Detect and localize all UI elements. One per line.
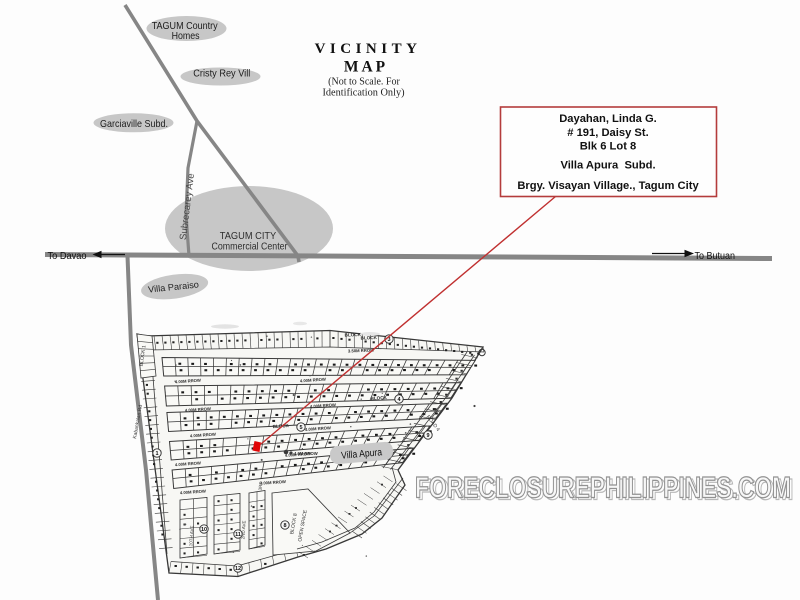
svg-text:8: 8 (283, 523, 286, 529)
svg-text:Homes: Homes (172, 30, 200, 42)
svg-text:Brgy. Visayan Village., Tagum: Brgy. Visayan Village., Tagum City (517, 180, 699, 192)
svg-text:(Not to Scale. For: (Not to Scale. For (328, 77, 400, 88)
svg-text:3RD: 3RD (258, 480, 264, 490)
svg-text:Blk 6 Lot 8: Blk 6 Lot 8 (580, 141, 637, 153)
svg-text:Identification Only): Identification Only) (322, 88, 404, 99)
svg-text:BLOCK: BLOCK (361, 335, 378, 341)
svg-text:5: 5 (299, 425, 302, 431)
svg-text:Commercial Center: Commercial Center (212, 241, 288, 253)
svg-text:Cristy Rey Vill: Cristy Rey Vill (193, 69, 250, 80)
svg-text:BLOCK: BLOCK (345, 332, 362, 338)
svg-text:VICINITY: VICINITY (315, 41, 422, 57)
svg-text:10: 10 (201, 527, 207, 533)
svg-text:MAP: MAP (344, 59, 388, 76)
svg-text:12: 12 (235, 566, 241, 572)
svg-text:To Butuan: To Butuan (695, 251, 736, 262)
svg-text:1: 1 (155, 451, 158, 457)
svg-text:# 191, Daisy St.: # 191, Daisy St. (567, 127, 648, 139)
svg-text:9: 9 (426, 433, 429, 439)
svg-text:To Davao: To Davao (48, 251, 87, 262)
svg-text:FORECLOSUREPHILIPPINES.COM: FORECLOSUREPHILIPPINES.COM (415, 472, 791, 505)
svg-text:Dayahan, Linda G.: Dayahan, Linda G. (559, 113, 657, 125)
svg-text:Garciaville Subd.: Garciaville Subd. (100, 119, 168, 130)
svg-text:Villa Apura Subd.: Villa Apura Subd. (560, 160, 655, 172)
svg-text:4.0M RROW: 4.0M RROW (294, 451, 318, 456)
